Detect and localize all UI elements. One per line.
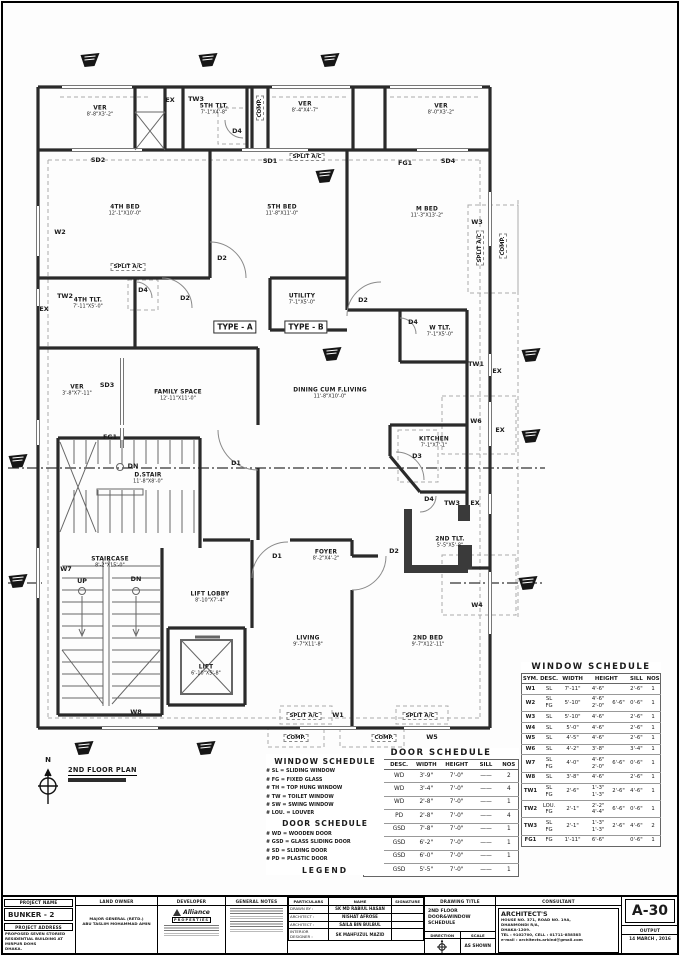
drawing-title: 2ND FLOORDOOR&WINDOW SCHEDULE (425, 907, 495, 930)
window-schedule-table: SYM. DESC. WIDTH HEIGHT SILL NOS W1SL7'-… (521, 673, 661, 847)
table-cell: 4 (500, 810, 519, 823)
table-cell: 7'-0" (441, 863, 472, 876)
table-cell: —— (472, 796, 499, 809)
table-cell: 1 (646, 783, 660, 800)
table-cell: INTERIOR DESIGNER : (289, 929, 329, 941)
plan-tag: W5 (426, 733, 438, 741)
plan-tag: W8 (130, 708, 142, 716)
table-cell: SL (539, 684, 559, 695)
table-row: SD4GSD5'-5"7'-0"——1 (364, 863, 519, 876)
plan-tag: D4 (232, 127, 242, 135)
legend-footer: LEGEND (266, 866, 384, 875)
table-row: D3WD2'-8"7'-0"——1 (364, 796, 519, 809)
col-desc: DESC. (539, 674, 559, 684)
sheet-number-cell: A-30 OUTPUT 14 MARCH , 2016 (622, 897, 678, 954)
col-sym: SYM. (522, 674, 539, 684)
plan-tag: D2 (389, 547, 399, 555)
table-cell: 2'-6" (627, 723, 646, 734)
room-label: FOYER8'-2"X4'-2" (313, 550, 340, 563)
elevation-marker-icon (315, 168, 336, 188)
table-cell: FG1 (522, 835, 539, 846)
room-label: 5TH TLT.7'-1"X4'-8" (200, 104, 228, 117)
table-cell: LOU. FG (539, 801, 559, 818)
table-cell: 2'-8" (412, 810, 441, 823)
drawing-sheet: VER8'-8"X3'-2"5TH TLT.7'-1"X4'-8"VER8'-4… (0, 0, 680, 956)
room-dimension: 7'-1"X4'-8" (200, 111, 228, 117)
table-cell: 4'-6" (586, 723, 611, 734)
table-row: ARCHITECT :SAILA BIN BULBUL (289, 921, 424, 929)
elevation-marker-icon (196, 740, 217, 760)
table-cell: 2'-1" (559, 818, 586, 835)
table-cell: 0'-6" (627, 755, 646, 772)
plan-tag: SPLIT A/C (287, 712, 322, 720)
scale-label: SCALE (461, 932, 496, 939)
list-item: e-mail : architects.arkind@gmail.com (501, 938, 616, 943)
table-row: D2WD3'-4"7'-0"——4 (364, 783, 519, 796)
table-cell: 0'-6" (627, 835, 646, 846)
plan-tag: TW3 (444, 499, 460, 507)
table-cell: 4'-6" 2'-0" (586, 694, 611, 711)
table-cell: WD (387, 770, 412, 783)
consultant-label: CONSULTANT (496, 897, 621, 906)
table-cell: 4'-0" (559, 755, 586, 772)
table-cell: 4'-6" 2'-0" (586, 755, 611, 772)
table-cell: 1 (646, 684, 660, 695)
plan-tag: EX (39, 305, 48, 313)
table-cell: 2'-8" (412, 796, 441, 809)
room-dimension: 8'-8"X3'-2" (87, 113, 114, 119)
table-header-row: PARTICULARS NAME SIGNATURE (289, 898, 424, 906)
plan-tag: D2 (217, 254, 227, 262)
table-cell: 4 (500, 783, 519, 796)
table-cell: —— (472, 823, 499, 836)
table-cell: SL (539, 723, 559, 734)
room-label: LIFT LOBBY8'-10"X7'-4" (191, 592, 230, 605)
title-block: PROJECT NAME BUNKER - 2 PROJECT ADDRESS … (2, 895, 678, 954)
col-nos: NOS (646, 674, 660, 684)
table-cell: PD (387, 810, 412, 823)
room-dimension: 7'-1"X7'-1" (419, 444, 449, 450)
door-schedule-table: SYM. DESC. WIDTH HEIGHT SILL NOS D1WD3'-… (363, 759, 519, 877)
table-row: TW1SL FG2'-6"1'-3" 1'-3"2'-6"4'-6"1 (522, 783, 661, 800)
plan-title-block: 2ND FLOOR PLAN SCALE : AS SHOWN (34, 756, 137, 782)
table-cell: W2 (522, 694, 539, 711)
plan-tag: TW3 (188, 95, 204, 103)
table-cell: 6'-6" (610, 694, 626, 711)
table-row: TW3SL FG2'-1"1'-3" 1'-3"2'-6"4'-6"2 (522, 818, 661, 835)
table-cell: 2 (500, 770, 519, 783)
table-cell (392, 929, 424, 941)
room-label: LIFT6'-10"X5'-8" (191, 665, 221, 678)
table-cell: SK MD RABIUL HASAN (328, 906, 391, 914)
project-name: BUNKER - 2 (4, 908, 73, 921)
table-cell (610, 684, 626, 695)
plan-tag: UP (77, 577, 87, 585)
room-label: W TLT.7'-1"X5'-0" (427, 326, 454, 339)
room-dimension: 7'-11"X5'-0" (73, 305, 103, 311)
table-cell: 7'-8" (412, 823, 441, 836)
table-cell: 3'-8" (559, 772, 586, 783)
table-cell: 2'-6" (610, 818, 626, 835)
table-cell: 7'-0" (441, 837, 472, 850)
plan-tag: TYPE - B (284, 321, 327, 334)
plan-tag: D4 (138, 286, 148, 294)
table-cell: 6'-6" (586, 835, 611, 846)
table-cell: 1 (646, 723, 660, 734)
scale-cell: SCALE AS SHOWN (461, 932, 496, 954)
elevation-marker-icon (8, 453, 29, 473)
list-item: # FG = FIXED GLASS (266, 777, 384, 783)
table-cell: WD (387, 783, 412, 796)
table-cell: W4 (522, 723, 539, 734)
room-dimension: 7'-1"X5'-0" (289, 301, 316, 307)
plan-tag: D2 (180, 294, 190, 302)
col-width: WIDTH (412, 760, 441, 770)
list-item: # SD = SLIDING DOOR (266, 848, 384, 854)
room-label: VER8'-0"X3'-2" (428, 104, 455, 117)
table-cell: 1 (646, 755, 660, 772)
table-cell: DRAWN BY : (289, 906, 329, 914)
table-row: W5SL4'-5"4'-6"2'-6"1 (522, 733, 661, 744)
room-label: LIVING9'-7"X11'-8" (293, 636, 323, 649)
table-cell: 7'-0" (441, 783, 472, 796)
table-cell (392, 913, 424, 921)
table-cell: GSD (387, 823, 412, 836)
table-row: SD1GSD7'-8"7'-0"——1 (364, 823, 519, 836)
list-item: # WD = WOODEN DOOR (266, 831, 384, 837)
table-cell: 0'-6" (627, 801, 646, 818)
table-cell: W8 (522, 772, 539, 783)
table-cell: GSD (387, 850, 412, 863)
scale-value: AS SHOWN (464, 944, 491, 949)
plan-tag: W2 (54, 228, 66, 236)
list-item: # TW = TOILET WINDOW (266, 794, 384, 800)
table-cell: W7 (522, 755, 539, 772)
table-cell: 7'-0" (441, 850, 472, 863)
direction-scale-row: DIRECTION SCALE AS SHOWN (425, 931, 495, 954)
table-cell: 1'-3" 1'-3" (586, 783, 611, 800)
table-cell (610, 744, 626, 755)
table-cell: —— (472, 850, 499, 863)
table-cell: SL (539, 733, 559, 744)
table-cell: 2'-6" (627, 733, 646, 744)
table-cell: TW3 (522, 818, 539, 835)
land-owner-cell: LAND OWNER MAJOR GENERAL (RETD.)ABU TASL… (76, 897, 158, 954)
room-label: 2ND BED9'-7"X12'-11" (412, 636, 445, 649)
table-cell: 6'-6" (610, 755, 626, 772)
plan-tag: TW2 (57, 292, 73, 300)
col-desc: DESC. (387, 760, 412, 770)
output-date: 14 MARCH , 2016 (622, 937, 678, 942)
table-cell: 4'-6" (627, 783, 646, 800)
table-cell: 5'-10" (559, 694, 586, 711)
table-row: SD2GSD6'-2"7'-0"——1 (364, 837, 519, 850)
table-row: W7SL FG4'-0"4'-6" 2'-0"6'-6"0'-6"1 (522, 755, 661, 772)
table-cell: 0'-6" (627, 694, 646, 711)
room-dimension: 8'-2"X15'-0" (91, 564, 128, 570)
plan-tag: EX (470, 499, 479, 507)
table-cell (392, 906, 424, 914)
table-cell (392, 921, 424, 929)
table-cell: SL (539, 772, 559, 783)
col-signature: SIGNATURE (392, 898, 424, 906)
table-row: SD3GSD6'-0"7'-0"——1 (364, 850, 519, 863)
room-label: STAIRCASE8'-2"X15'-0" (91, 557, 128, 570)
table-cell: —— (472, 863, 499, 876)
particulars-cell: PARTICULARS NAME SIGNATURE DRAWN BY :SK … (288, 897, 425, 954)
elevation-marker-icon (521, 428, 542, 448)
table-cell: SL (539, 744, 559, 755)
table-cell: 1 (646, 694, 660, 711)
table-cell (610, 723, 626, 734)
developer-logo: Alliance (158, 909, 225, 916)
direction-label: DIRECTION (425, 932, 460, 939)
drawing-title-label: DRAWING TITLE (425, 897, 495, 906)
plan-tag: COMP. (256, 96, 264, 121)
table-cell (610, 733, 626, 744)
room-dimension: 12'-11"X11'-0" (154, 397, 202, 403)
room-dimension: 3'-8"X7'-11" (62, 392, 92, 398)
consultant-cell: CONSULTANT ARCHITECT'S HOUSE NO. 371, RO… (496, 897, 622, 954)
developer-fineprint (164, 925, 219, 937)
table-cell: W1 (522, 684, 539, 695)
room-dimension: 12'-1"X10'-0" (109, 212, 142, 218)
room-label: DINING CUM F.LIVING11'-8"X10'-0" (293, 388, 367, 401)
consultant-address: HOUSE NO. 371, ROAD NO. 19A,DHANMONDI R/… (501, 918, 616, 942)
room-label: VER8'-4"X4'-7" (292, 102, 319, 115)
table-cell: 2'-6" (627, 712, 646, 723)
plan-tag: D3 (412, 452, 422, 460)
room-label: UTILITY7'-1"X5'-0" (289, 294, 316, 307)
plan-tag: D1 (231, 459, 241, 467)
table-row: ARCHITECT :NISHAT AFROSE (289, 913, 424, 921)
plan-tag: D4 (408, 318, 418, 326)
table-cell: 4'-2" (559, 744, 586, 755)
table-cell: 7'-11" (559, 684, 586, 695)
elevation-marker-icon (8, 573, 29, 593)
table-cell: SL FG (539, 818, 559, 835)
plan-tag: EX (492, 367, 501, 375)
table-cell: 3'-9" (412, 770, 441, 783)
col-width: WIDTH (559, 674, 586, 684)
table-row: W1SL7'-11"4'-6"2'-6"1 (522, 684, 661, 695)
land-owner-label: LAND OWNER (76, 897, 157, 906)
table-cell: W5 (522, 733, 539, 744)
output-label: OUTPUT (622, 925, 678, 935)
table-cell: 3'-8" (586, 744, 611, 755)
plan-tag: SD3 (100, 381, 114, 389)
table-row: DRAWN BY :SK MD RABIUL HASAN (289, 906, 424, 914)
table-cell: —— (472, 770, 499, 783)
table-cell: 1 (646, 835, 660, 846)
table-cell: 6'-0" (412, 850, 441, 863)
table-cell: 3'-4" (412, 783, 441, 796)
plan-tag: COMP. (284, 734, 309, 742)
particulars-table: PARTICULARS NAME SIGNATURE DRAWN BY :SK … (288, 897, 424, 941)
plan-tag: COMP. (499, 234, 507, 259)
table-cell: TW2 (522, 801, 539, 818)
table-row: W3SL5'-10"4'-6"2'-6"1 (522, 712, 661, 723)
table-cell: 3'-4" (627, 744, 646, 755)
room-dimension: 8'-2"X4'-2" (313, 557, 340, 563)
table-cell: —— (472, 837, 499, 850)
table-cell: 2'-6" (559, 783, 586, 800)
legend-window-title: WINDOW SCHEDULE (266, 757, 384, 766)
developer-cell: DEVELOPER Alliance PROPERTIES (158, 897, 226, 954)
table-cell: FG (539, 835, 559, 846)
room-label: 4TH TLT.7'-11"X5'-0" (73, 298, 103, 311)
table-cell: 7'-0" (441, 810, 472, 823)
table-cell: GSD (387, 837, 412, 850)
table-cell: SAILA BIN BULBUL (328, 921, 391, 929)
table-row: TW2LOU. FG2'-1"2'-2" 4'-4"6'-6"0'-6"1 (522, 801, 661, 818)
room-dimension: 11'-3"X13'-2" (411, 214, 444, 220)
table-header-row: SYM. DESC. WIDTH HEIGHT SILL NOS (522, 674, 661, 684)
table-cell: NISHAT AFROSE (328, 913, 391, 921)
table-cell: SL (539, 712, 559, 723)
table-cell: 1 (500, 850, 519, 863)
room-dimension: 11'-8"X10'-0" (293, 395, 367, 401)
door-schedule-title: DOOR SCHEDULE (363, 748, 519, 758)
room-dimension: 5'-5"X5'-8" (435, 544, 464, 550)
table-cell: 1 (646, 733, 660, 744)
table-cell: 4'-6" (586, 684, 611, 695)
table-cell: 5'-5" (412, 863, 441, 876)
list-item: # PD = PLASTIC DOOR (266, 856, 384, 862)
sheet-number: A-30 (625, 899, 675, 923)
plan-tag: SD4 (441, 157, 455, 165)
table-cell: 1 (646, 712, 660, 723)
table-cell: 1'-3" 1'-3" (586, 818, 611, 835)
room-dimension: 8'-0"X3'-2" (428, 111, 455, 117)
col-height: HEIGHT (441, 760, 472, 770)
plan-tag: DN (128, 462, 139, 470)
list-item: # SW = SWING WINDOW (266, 802, 384, 808)
table-cell: 4'-6" (586, 712, 611, 723)
plan-tag: W6 (470, 417, 482, 425)
table-cell: 4'-6" (627, 818, 646, 835)
elevation-marker-icon (521, 347, 542, 367)
door-schedule: DOOR SCHEDULE SYM. DESC. WIDTH HEIGHT SI… (363, 748, 519, 877)
col-sill: SILL (472, 760, 499, 770)
table-cell (610, 712, 626, 723)
plan-tag: TW1 (468, 360, 484, 368)
table-cell: —— (472, 783, 499, 796)
general-notes-cell: GENERAL NOTES (226, 897, 288, 954)
plan-title: 2ND FLOOR PLAN (68, 766, 137, 776)
room-label: VER8'-8"X3'-2" (87, 106, 114, 119)
table-row: W6SL4'-2"3'-8"3'-4"1 (522, 744, 661, 755)
list-item: # GSD = GLASS SLIDING DOOR (266, 839, 384, 845)
table-cell: 2'-6" (610, 783, 626, 800)
table-cell: 4'-6" (586, 772, 611, 783)
table-cell: 4'-5" (559, 733, 586, 744)
room-label: D.STAIR11'-8"X8'-0" (133, 473, 163, 486)
project-address: PROPOSED SEVEN STORIEDRESIDENTIAL BUILDI… (2, 932, 75, 952)
table-cell: 2'-2" 4'-4" (586, 801, 611, 818)
table-cell: 1 (646, 744, 660, 755)
plan-tag: EX (165, 96, 174, 104)
elevation-marker-icon (322, 346, 343, 366)
table-cell: 6'-6" (610, 801, 626, 818)
plan-tag: DN (131, 575, 142, 583)
room-dimension: 11'-8"X8'-0" (133, 480, 163, 486)
table-row: INTERIOR DESIGNER :SK MAHFUZUL MAZID (289, 929, 424, 941)
table-row: W8SL3'-8"4'-6"2'-6"1 (522, 772, 661, 783)
drawing-title-cell: DRAWING TITLE 2ND FLOORDOOR&WINDOW SCHED… (425, 897, 496, 954)
table-cell: 1 (500, 837, 519, 850)
elevation-marker-icon (80, 52, 101, 72)
room-dimension: 9'-7"X11'-8" (293, 643, 323, 649)
col-nos: NOS (500, 760, 519, 770)
table-cell (610, 772, 626, 783)
list-item: # SL = SLIDING WINDOW (266, 768, 384, 774)
legend-window-items: # SL = SLIDING WINDOW# FG = FIXED GLASS#… (266, 768, 384, 816)
plan-tag: COMP. (372, 734, 397, 742)
table-cell: W3 (522, 712, 539, 723)
table-cell: —— (472, 810, 499, 823)
table-cell: 4'-6" (586, 733, 611, 744)
table-cell: 6'-2" (412, 837, 441, 850)
direction-cell: DIRECTION (425, 932, 461, 954)
table-cell: 1 (646, 801, 660, 818)
direction-compass-icon (435, 939, 449, 953)
plan-tag: D1 (272, 552, 282, 560)
table-cell (610, 835, 626, 846)
table-row: D1WD3'-9"7'-0"——2 (364, 770, 519, 783)
table-cell: 1'-11" (559, 835, 586, 846)
table-cell: TW1 (522, 783, 539, 800)
plan-tag: D4 (424, 495, 434, 503)
table-cell: SL FG (539, 783, 559, 800)
list-item: # LOU. = LOUVER (266, 810, 384, 816)
table-cell: 2'-6" (627, 772, 646, 783)
table-cell: W6 (522, 744, 539, 755)
table-cell: 1 (646, 772, 660, 783)
plan-tag: SD2 (91, 156, 105, 164)
col-name: NAME (328, 898, 391, 906)
table-cell: 1 (500, 863, 519, 876)
table-cell: SL FG (539, 694, 559, 711)
col-sill: SILL (627, 674, 646, 684)
table-cell: 2 (646, 818, 660, 835)
plan-tag: SPLIT A/C (111, 263, 146, 271)
room-label: 4TH BED12'-1"X10'-0" (109, 205, 142, 218)
plan-tag: W4 (471, 601, 483, 609)
general-notes-text (230, 908, 283, 934)
elevation-marker-icon (518, 575, 539, 595)
table-cell: 1 (500, 823, 519, 836)
plan-tag: W3 (471, 218, 483, 226)
elevation-marker-icon (320, 52, 341, 72)
table-cell: 7'-0" (441, 770, 472, 783)
table-cell: 2'-6" (627, 684, 646, 695)
table-cell: WD (387, 796, 412, 809)
plan-tag: SPLIT A/C (403, 712, 438, 720)
developer-name: Alliance (183, 909, 210, 916)
project-cell: PROJECT NAME BUNKER - 2 PROJECT ADDRESS … (2, 897, 76, 954)
room-label: VER3'-8"X7'-11" (62, 385, 92, 398)
plan-subtitle: SCALE : AS SHOWN (68, 778, 126, 782)
plan-tag: FG1 (398, 159, 412, 167)
developer-subname: PROPERTIES (172, 917, 211, 923)
developer-label: DEVELOPER (158, 897, 225, 906)
list-item: ABU TASLIM MOHAMMAD AMIN (79, 922, 154, 927)
plan-tag: D2 (358, 296, 368, 304)
table-cell: 5'-10" (559, 712, 586, 723)
plan-tag: SPLIT A/C (290, 153, 325, 161)
table-cell: 5'-0" (559, 723, 586, 734)
